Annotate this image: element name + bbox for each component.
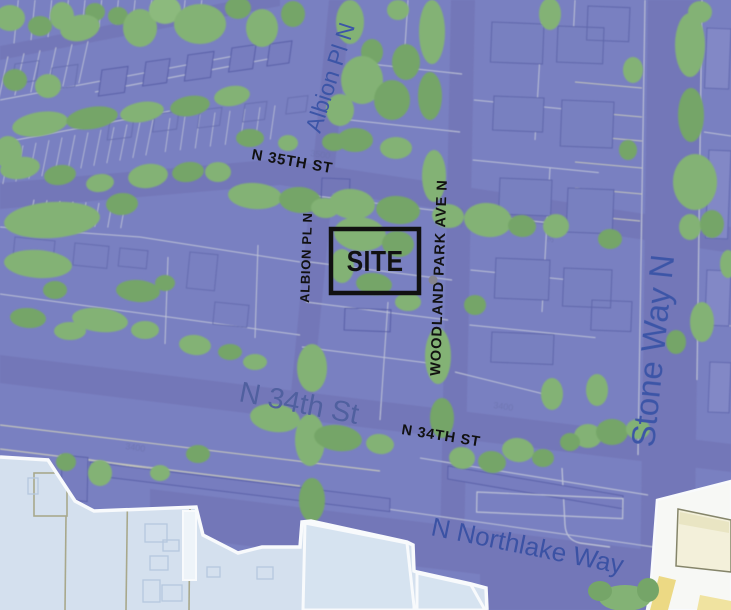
svg-text:SITE: SITE — [347, 245, 404, 277]
svg-text:ALBION PL N: ALBION PL N — [297, 212, 315, 303]
